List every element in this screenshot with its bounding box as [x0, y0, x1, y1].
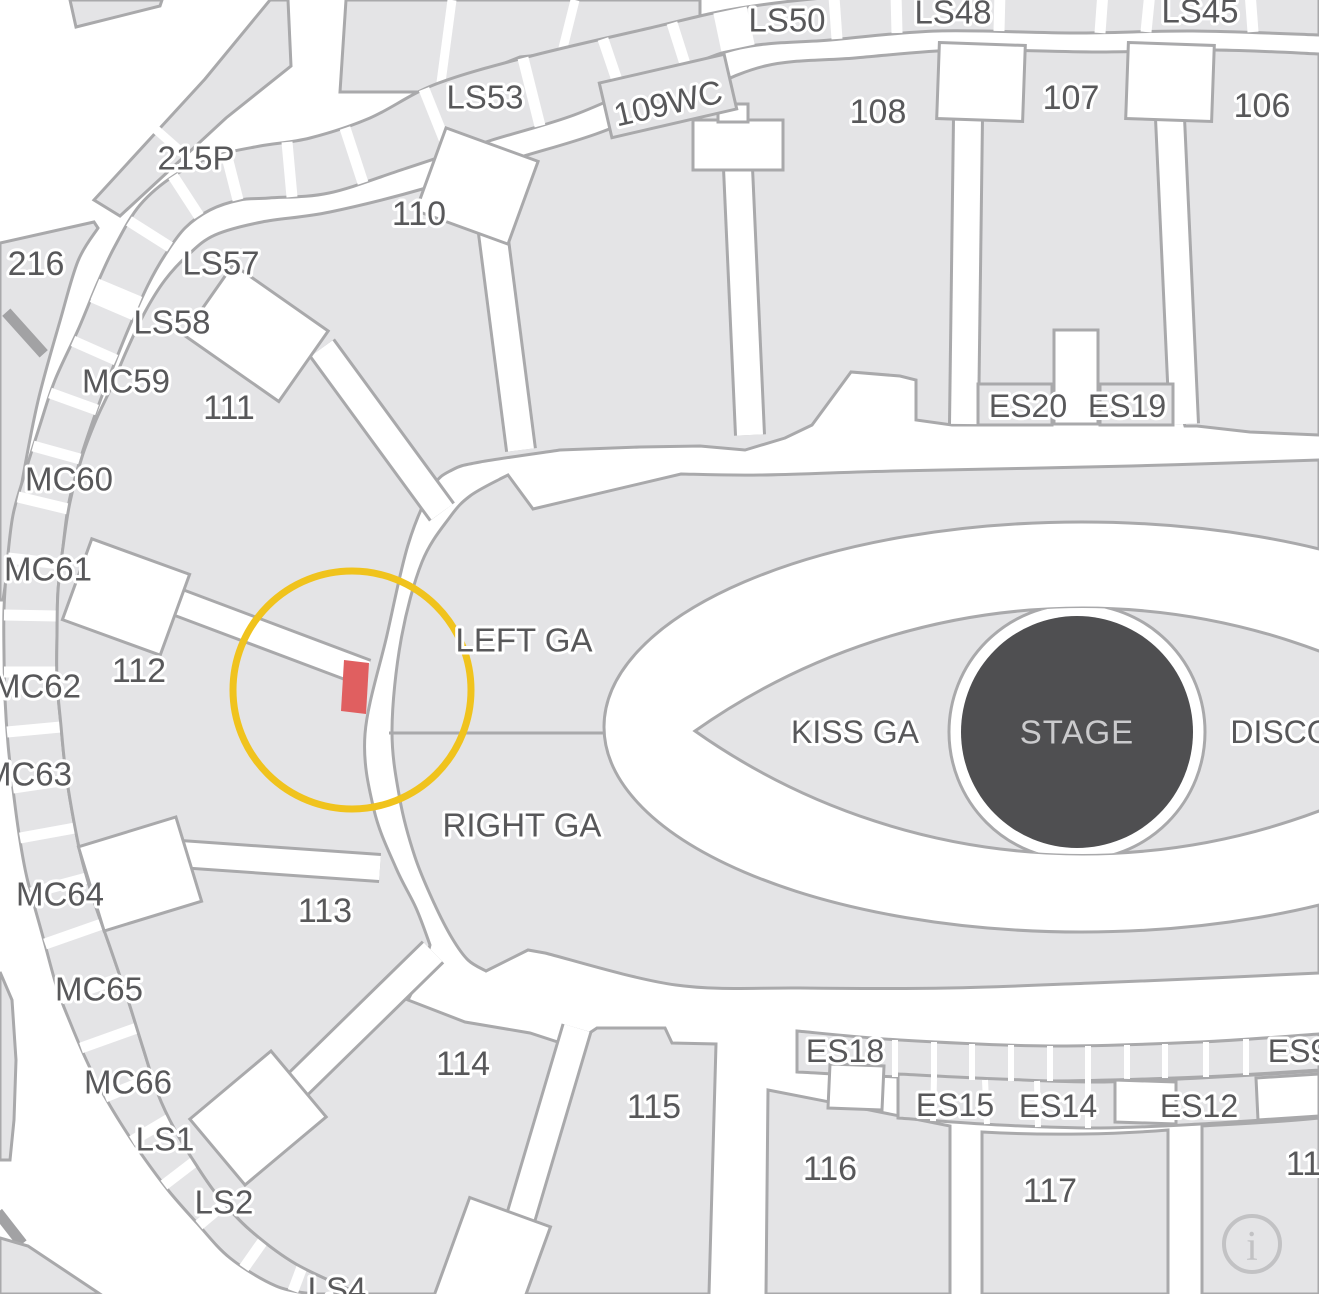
- svg-text:LEFT GA: LEFT GA: [456, 622, 593, 659]
- svg-text:LS53: LS53: [446, 79, 523, 116]
- svg-text:113: 113: [298, 892, 352, 930]
- svg-text:LS1: LS1: [136, 1121, 195, 1158]
- svg-text:216: 216: [8, 245, 65, 283]
- svg-text:LS50: LS50: [748, 2, 825, 39]
- svg-text:ES9: ES9: [1268, 1033, 1319, 1069]
- svg-text:ES15: ES15: [916, 1087, 994, 1123]
- svg-text:RIGHT GA: RIGHT GA: [443, 807, 602, 844]
- svg-text:107: 107: [1043, 79, 1100, 117]
- svg-text:108: 108: [850, 93, 907, 131]
- svg-text:MC62: MC62: [0, 668, 81, 705]
- svg-text:STAGE: STAGE: [1020, 714, 1134, 751]
- svg-text:MC61: MC61: [4, 551, 92, 588]
- svg-text:ES18: ES18: [806, 1033, 884, 1069]
- svg-text:LS4: LS4: [308, 1271, 367, 1295]
- svg-text:MC66: MC66: [84, 1064, 172, 1101]
- svg-text:118: 118: [1286, 1145, 1319, 1183]
- svg-text:LS45: LS45: [1161, 0, 1238, 30]
- svg-text:DISCO: DISCO: [1230, 714, 1319, 750]
- svg-text:110: 110: [392, 195, 446, 233]
- svg-text:114: 114: [436, 1045, 490, 1083]
- svg-text:MC60: MC60: [25, 461, 113, 498]
- svg-text:MC59: MC59: [82, 363, 170, 400]
- svg-text:ES12: ES12: [1160, 1088, 1238, 1124]
- svg-text:LS57: LS57: [182, 245, 259, 282]
- svg-text:112: 112: [112, 652, 166, 690]
- svg-text:115: 115: [627, 1088, 681, 1126]
- svg-text:LS48: LS48: [914, 0, 991, 31]
- svg-text:106: 106: [1234, 87, 1291, 125]
- svg-text:MC63: MC63: [0, 756, 72, 793]
- svg-text:ES14: ES14: [1019, 1088, 1097, 1124]
- svg-text:MC65: MC65: [55, 971, 143, 1008]
- svg-text:215P: 215P: [157, 140, 234, 177]
- svg-text:MC64: MC64: [16, 876, 104, 913]
- svg-text:KISS GA: KISS GA: [791, 714, 920, 750]
- svg-text:116: 116: [803, 1150, 857, 1188]
- svg-text:LS58: LS58: [133, 304, 210, 341]
- svg-text:111: 111: [203, 389, 255, 427]
- svg-text:LS2: LS2: [195, 1184, 254, 1221]
- svg-text:117: 117: [1023, 1172, 1077, 1210]
- svg-text:i: i: [1246, 1224, 1258, 1270]
- svg-text:ES20: ES20: [989, 388, 1067, 424]
- svg-text:ES19: ES19: [1088, 388, 1166, 424]
